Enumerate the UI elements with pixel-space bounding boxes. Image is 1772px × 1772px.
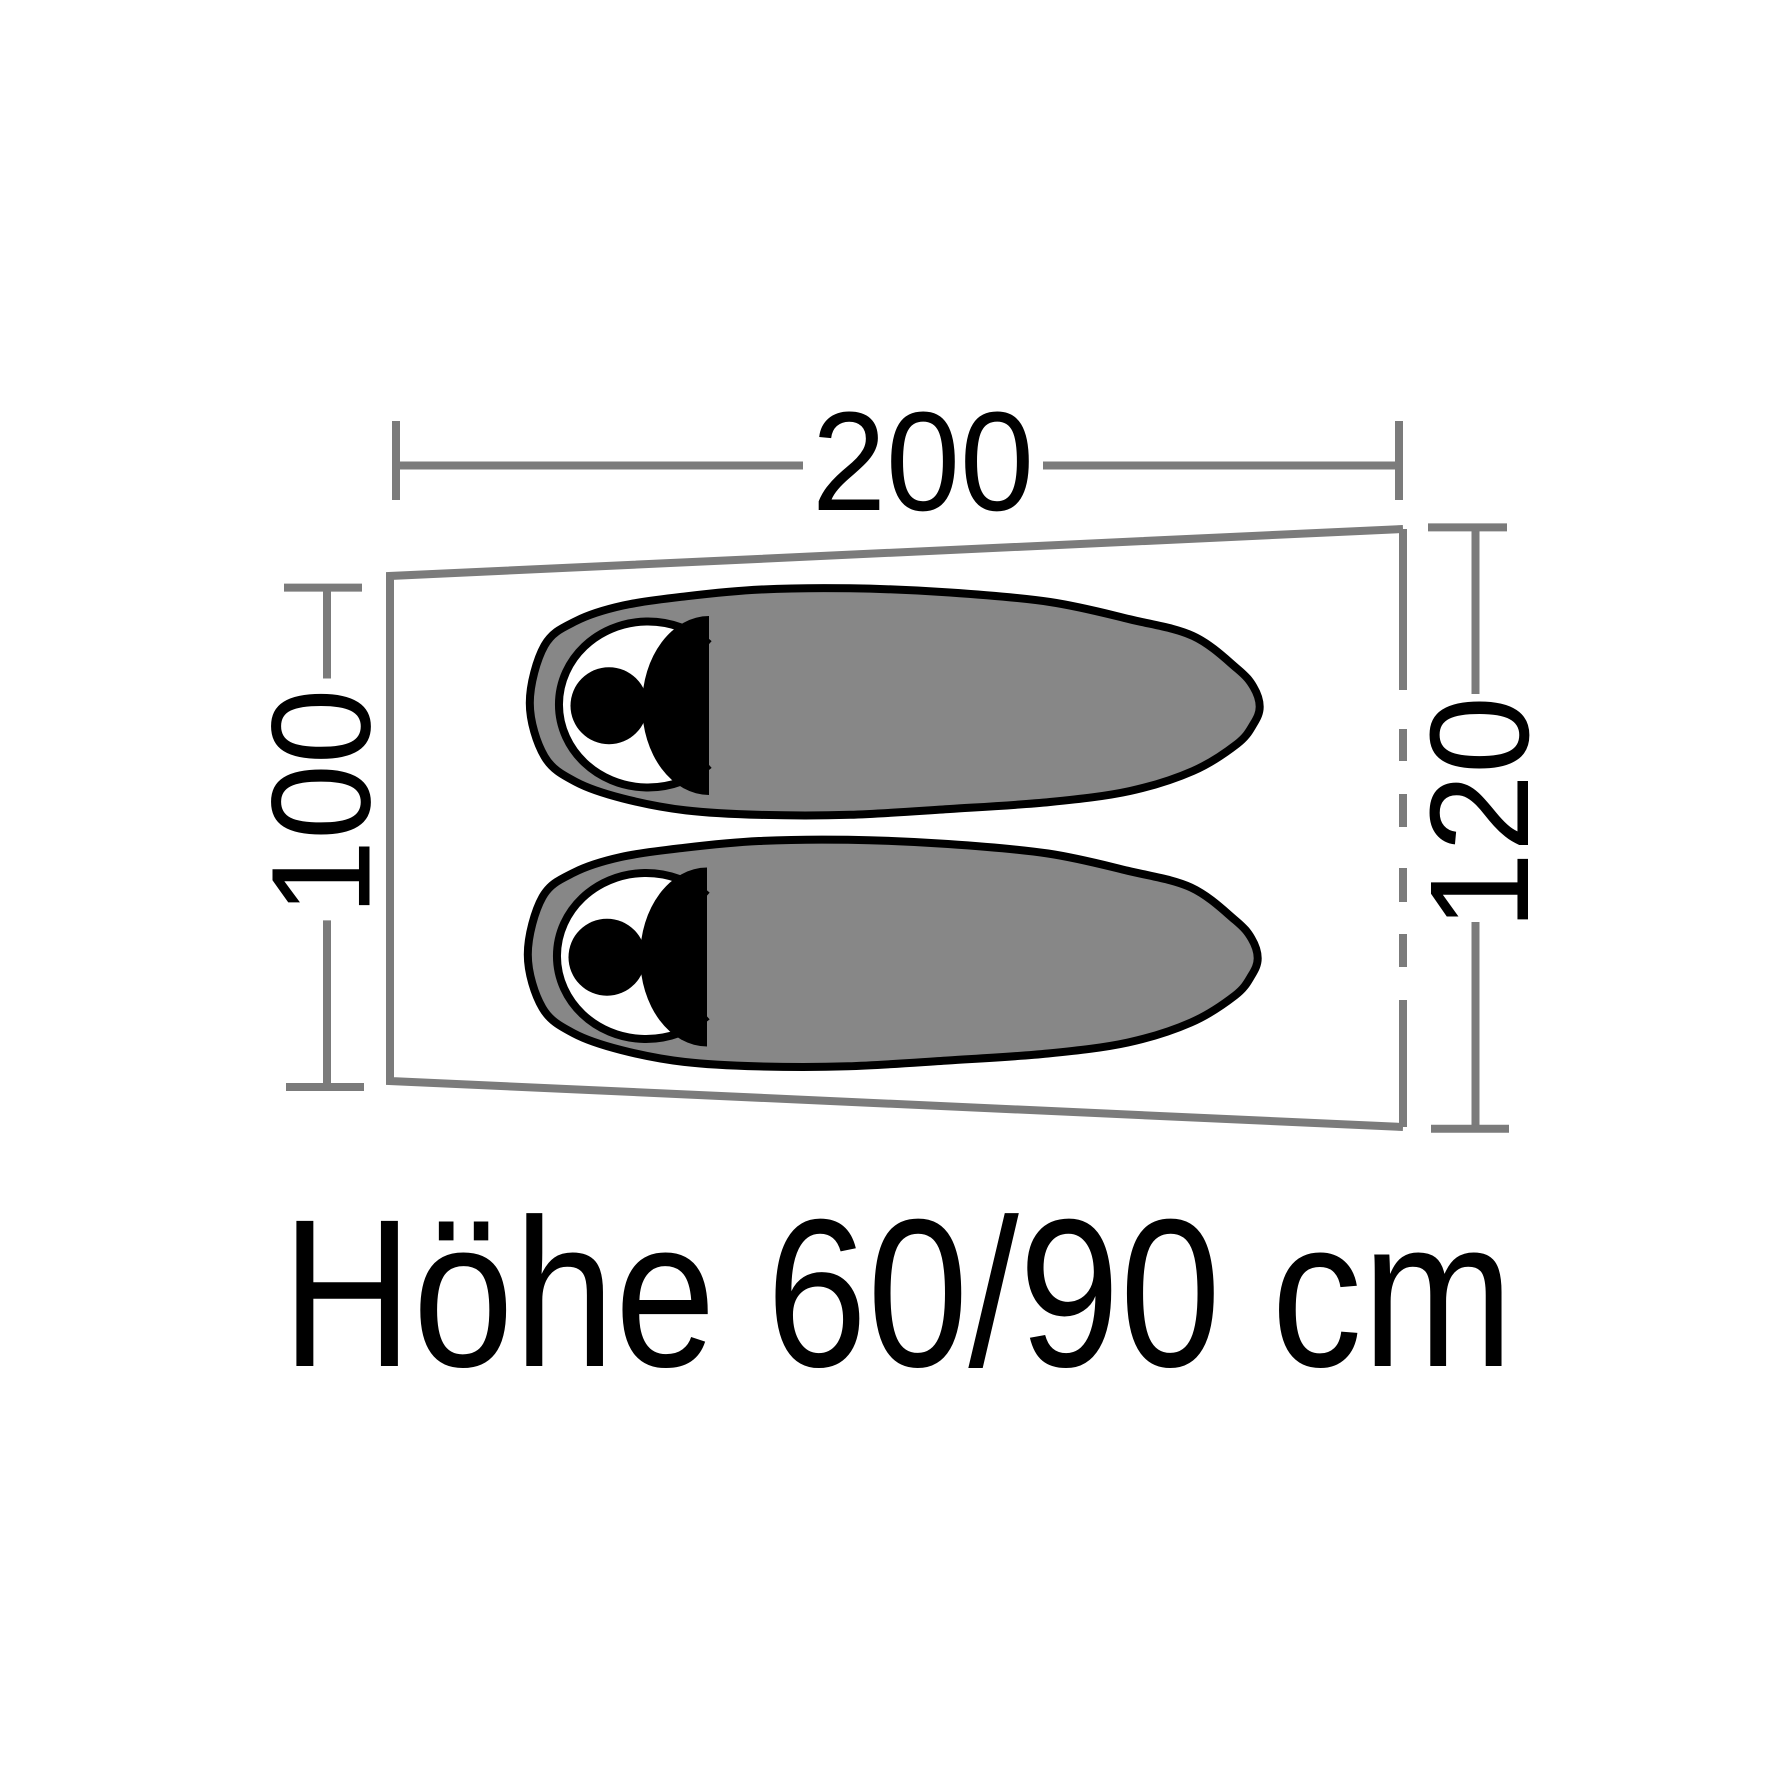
svg-text:200: 200 bbox=[812, 382, 1034, 540]
svg-text:100: 100 bbox=[242, 689, 400, 916]
svg-text:Höhe 60/90 cm: Höhe 60/90 cm bbox=[282, 1175, 1514, 1411]
svg-text:120: 120 bbox=[1400, 696, 1558, 930]
